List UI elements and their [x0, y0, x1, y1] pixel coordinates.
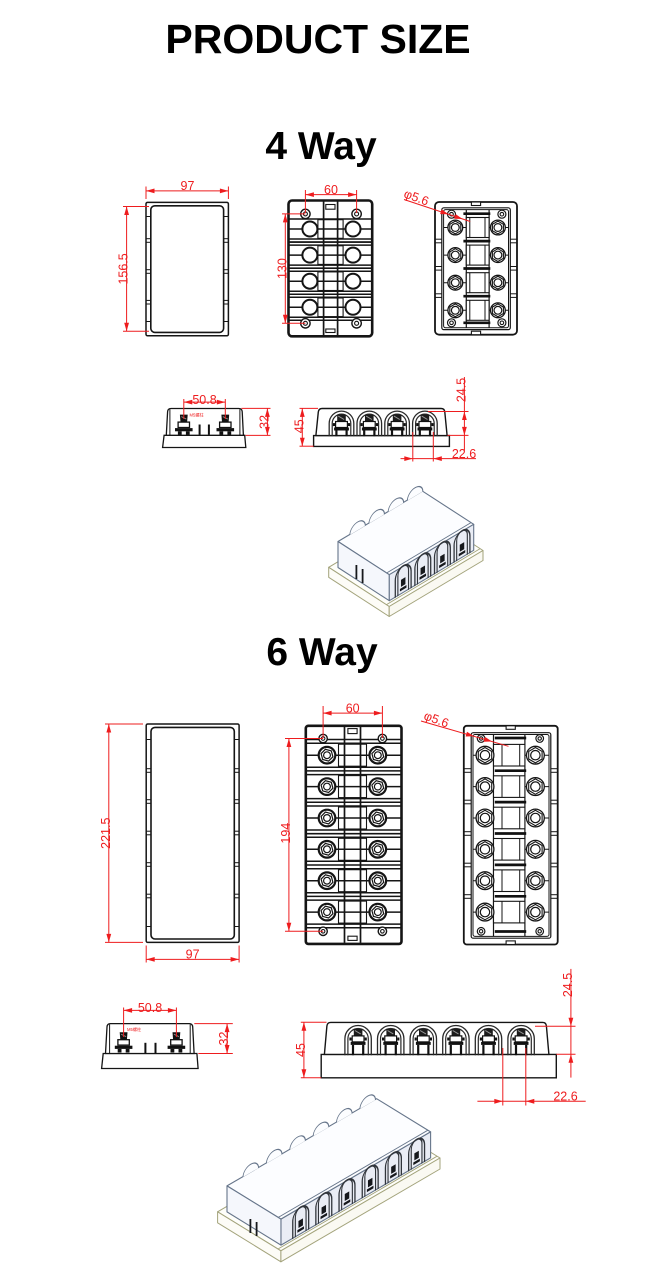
svg-text:24.5: 24.5 [454, 378, 468, 402]
svg-text:PRODUCT SIZE: PRODUCT SIZE [165, 16, 470, 62]
svg-text:M5螺柱: M5螺柱 [127, 1026, 142, 1033]
svg-text:130: 130 [275, 258, 289, 279]
svg-text:32: 32 [258, 415, 272, 429]
svg-text:194: 194 [279, 823, 293, 844]
svg-text:97: 97 [181, 179, 195, 193]
svg-text:221.5: 221.5 [99, 818, 113, 849]
svg-text:97: 97 [186, 948, 200, 962]
svg-text:45: 45 [294, 1043, 308, 1057]
svg-text:50.8: 50.8 [192, 393, 216, 407]
svg-text:60: 60 [324, 183, 338, 197]
svg-text:50.8: 50.8 [138, 1001, 162, 1015]
svg-text:4 Way: 4 Way [265, 125, 377, 168]
svg-text:24.5: 24.5 [561, 973, 575, 997]
svg-text:60: 60 [346, 702, 360, 716]
svg-text:32: 32 [217, 1032, 231, 1046]
svg-text:22.6: 22.6 [553, 1090, 577, 1104]
svg-text:6 Way: 6 Way [266, 631, 378, 674]
svg-text:22.6: 22.6 [452, 447, 476, 461]
svg-text:156.5: 156.5 [117, 253, 131, 284]
svg-text:M5螺柱: M5螺柱 [190, 411, 205, 418]
svg-text:45: 45 [292, 419, 306, 433]
